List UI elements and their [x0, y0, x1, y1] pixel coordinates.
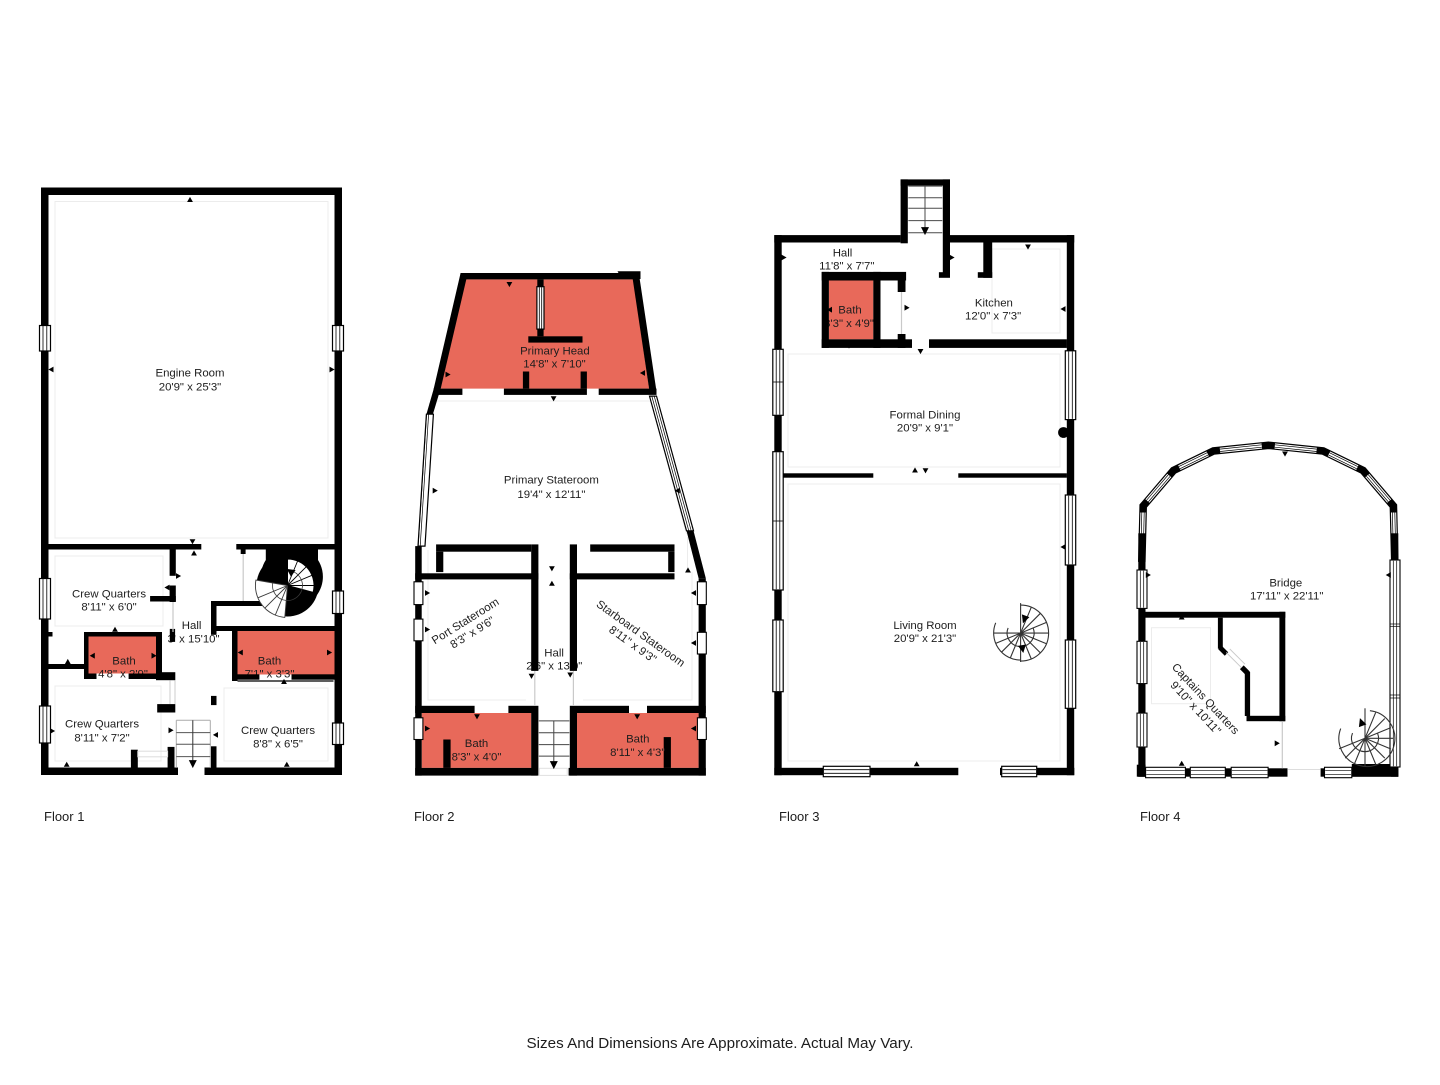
svg-text:Primary Stateroom: Primary Stateroom [504, 474, 599, 486]
svg-text:Floor 4: Floor 4 [1140, 809, 1180, 824]
svg-text:Formal Dining: Formal Dining [890, 410, 961, 422]
svg-text:Floor 3: Floor 3 [779, 809, 819, 824]
svg-text:Living Room: Living Room [893, 620, 956, 632]
svg-text:Kitchen: Kitchen [975, 298, 1013, 310]
svg-text:11'8" x 7'7": 11'8" x 7'7" [819, 261, 874, 273]
svg-text:Sizes And Dimensions Are Appro: Sizes And Dimensions Are Approximate. Ac… [527, 1035, 914, 1052]
svg-text:Bath: Bath [258, 656, 281, 668]
svg-text:12'0" x 7'3": 12'0" x 7'3" [965, 311, 1021, 323]
svg-text:3' x 15'10": 3' x 15'10" [167, 633, 219, 645]
svg-text:Bridge: Bridge [1269, 578, 1302, 590]
svg-text:17'11" x 22'11": 17'11" x 22'11" [1250, 591, 1323, 603]
svg-text:Hall: Hall [833, 248, 853, 260]
svg-text:8'8" x 6'5": 8'8" x 6'5" [253, 739, 303, 751]
svg-text:8'11" x 6'0": 8'11" x 6'0" [81, 602, 136, 614]
svg-text:Primary Head: Primary Head [520, 345, 590, 357]
svg-text:8'3" x 4'0": 8'3" x 4'0" [452, 751, 502, 763]
svg-text:Crew Quarters: Crew Quarters [65, 718, 139, 730]
svg-text:20'9" x 9'1": 20'9" x 9'1" [897, 423, 953, 435]
svg-text:20'9" x 25'3": 20'9" x 25'3" [159, 382, 221, 394]
svg-text:3'3" x 4'9": 3'3" x 4'9" [824, 318, 874, 330]
svg-text:Crew Quarters: Crew Quarters [241, 725, 315, 737]
svg-text:Bath: Bath [838, 305, 861, 317]
svg-text:Bath: Bath [465, 738, 488, 750]
svg-text:14'8" x 7'10": 14'8" x 7'10" [523, 358, 585, 370]
svg-text:8'11" x 4'3": 8'11" x 4'3" [610, 747, 665, 759]
svg-text:Bath: Bath [112, 656, 135, 668]
svg-text:19'4" x 12'11": 19'4" x 12'11" [517, 489, 585, 501]
svg-text:Engine Room: Engine Room [155, 368, 224, 380]
svg-text:Hall: Hall [544, 647, 564, 659]
svg-text:Floor 2: Floor 2 [414, 809, 454, 824]
svg-text:Floor 1: Floor 1 [44, 809, 84, 824]
svg-text:20'9" x 21'3": 20'9" x 21'3" [894, 633, 956, 645]
svg-text:8'11" x 7'2": 8'11" x 7'2" [74, 732, 129, 744]
svg-text:Hall: Hall [182, 620, 202, 632]
svg-text:Crew Quarters: Crew Quarters [72, 589, 146, 601]
svg-text:Bath: Bath [626, 733, 649, 745]
